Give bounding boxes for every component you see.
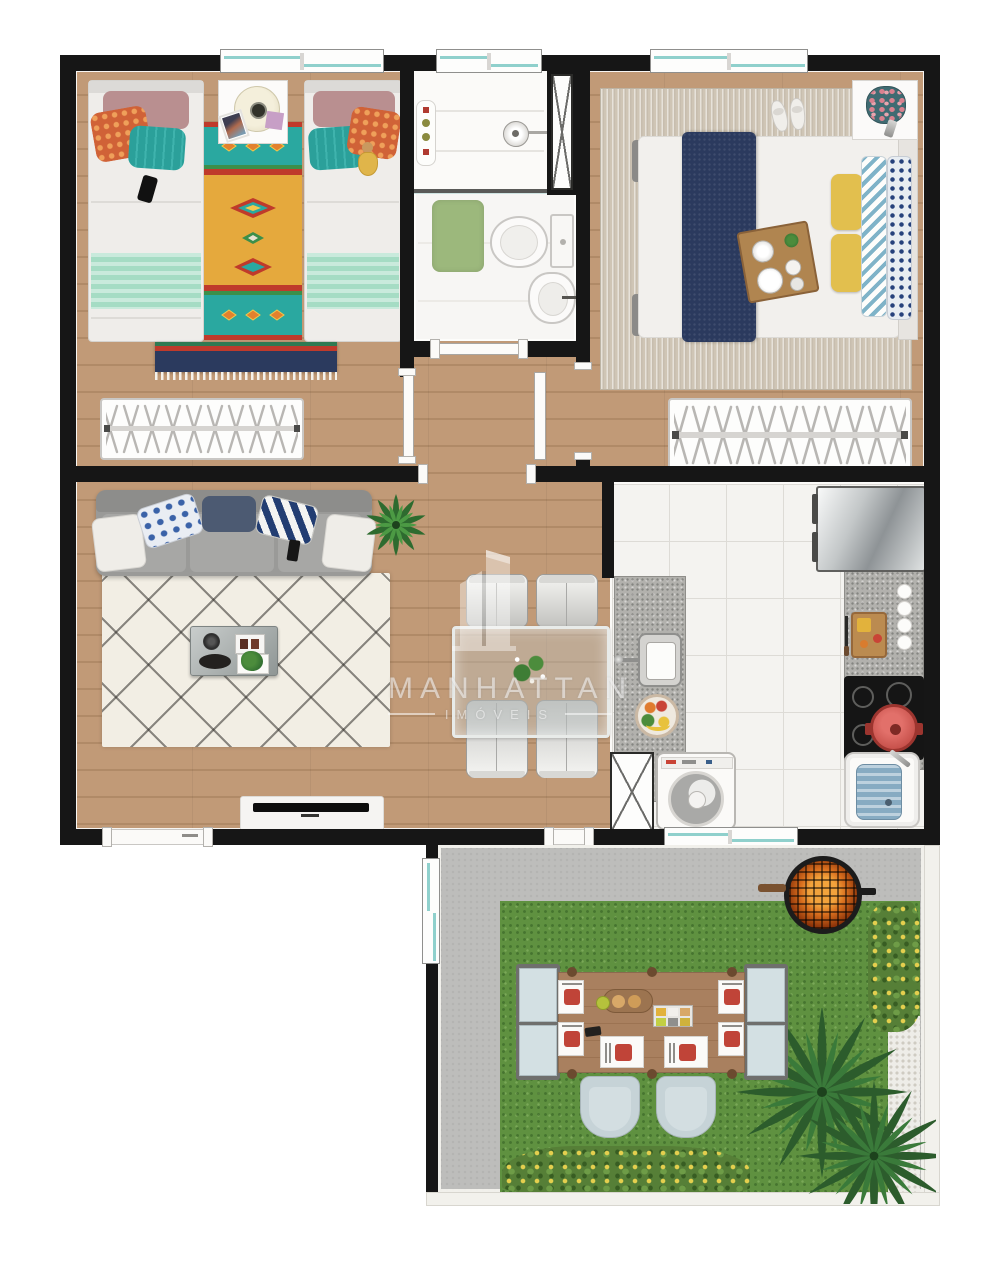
door-jamb xyxy=(518,339,528,359)
kids-runner-rug xyxy=(204,122,302,340)
egg xyxy=(897,601,912,616)
window-pane xyxy=(730,64,805,67)
teapot xyxy=(750,239,775,264)
plate-red xyxy=(679,1044,696,1061)
door-jamb xyxy=(398,456,416,464)
garden-chair xyxy=(656,1076,716,1138)
drain xyxy=(885,799,892,806)
toilet xyxy=(490,214,576,270)
wall-master-left xyxy=(576,55,590,370)
door-jamb xyxy=(584,827,594,847)
cup xyxy=(784,258,803,277)
watermark-brand: MANHATTAN xyxy=(388,672,616,706)
control-mark xyxy=(706,760,712,764)
door-master-bedroom xyxy=(534,372,546,460)
table-peg xyxy=(647,967,657,977)
soap xyxy=(422,119,430,127)
egg xyxy=(897,635,912,650)
door-jamb xyxy=(430,339,440,359)
sofa xyxy=(96,490,372,576)
condiment-tray xyxy=(653,1005,693,1027)
window-divider xyxy=(300,53,304,70)
table-peg xyxy=(567,1069,577,1079)
fruit-bowl xyxy=(635,694,679,738)
garden-bench-right xyxy=(744,964,788,1080)
tv-stand xyxy=(240,796,384,832)
subtitle-rule-right xyxy=(565,713,612,715)
mini-plant xyxy=(783,232,799,248)
wall-left xyxy=(60,55,76,845)
banana xyxy=(646,719,670,731)
carrot xyxy=(860,640,868,648)
brand-logo-icon xyxy=(452,550,516,662)
window-pane xyxy=(303,64,381,67)
plate-red xyxy=(724,989,740,1005)
sink-basin xyxy=(646,642,676,680)
place-setting xyxy=(664,1036,708,1068)
window-garden xyxy=(422,858,440,964)
duvet-seam xyxy=(307,201,399,203)
bench-cushion xyxy=(747,968,785,1022)
place-setting xyxy=(558,980,584,1014)
cushion-teal xyxy=(128,125,187,171)
window-bathroom xyxy=(436,49,542,73)
jam-jar xyxy=(789,276,805,292)
grill-handle xyxy=(858,888,876,895)
door-jamb xyxy=(398,368,416,376)
lamp-shade-center xyxy=(250,102,267,119)
twin-bed-left xyxy=(88,80,204,342)
bread xyxy=(612,995,625,1008)
window-pane xyxy=(440,56,490,59)
cutlery xyxy=(673,1043,675,1063)
tv-base xyxy=(301,814,319,817)
chair-back xyxy=(469,771,525,778)
picnic-table xyxy=(558,972,745,1073)
floor-plan: MANHATTAN IMÓVEIS xyxy=(0,0,1001,1280)
tv xyxy=(253,803,369,812)
laundry-tank xyxy=(844,752,920,828)
shampoo-bottle xyxy=(423,107,429,113)
condiment xyxy=(656,1018,666,1026)
chair-seam xyxy=(566,583,567,627)
door-kids-bedroom xyxy=(403,368,414,460)
table-peg xyxy=(567,967,577,977)
wardrobe-rack-master xyxy=(668,398,912,472)
plate xyxy=(755,266,785,296)
bottle xyxy=(251,639,259,649)
window-divider xyxy=(487,53,491,70)
dining-chair xyxy=(536,574,598,628)
cutlery xyxy=(669,1043,671,1063)
place-setting xyxy=(718,980,744,1014)
chair-seat xyxy=(589,1087,631,1131)
washer-controls xyxy=(661,757,733,769)
kitchen-faucet-base xyxy=(614,655,623,664)
kids-fringe-rug xyxy=(155,342,337,372)
wall-right xyxy=(924,55,940,845)
pillow-chevron xyxy=(861,156,887,317)
tomato xyxy=(873,634,882,643)
charcoal-grill xyxy=(784,856,862,934)
fridge-handle xyxy=(812,494,818,524)
wall-bath-bottom-b xyxy=(522,341,578,357)
condiment xyxy=(668,1018,678,1026)
door-jamb xyxy=(574,362,592,370)
window-master-bedroom xyxy=(650,49,808,73)
bench-cushion xyxy=(519,968,557,1022)
table-peg xyxy=(727,967,737,977)
chair-back xyxy=(539,771,595,778)
rug-fringe xyxy=(155,372,337,380)
cutlery xyxy=(722,983,742,985)
knife xyxy=(845,616,848,648)
washer-drum xyxy=(668,771,724,827)
plate-red xyxy=(564,1031,580,1047)
shower-head-center xyxy=(512,130,519,137)
condiment xyxy=(680,1008,690,1016)
wall-bottom-b xyxy=(205,829,552,845)
garden-chair xyxy=(580,1076,640,1138)
place-setting xyxy=(718,1022,744,1056)
kitchen-sink xyxy=(638,633,682,687)
decor-bowl xyxy=(199,654,231,669)
shower-glass-partition xyxy=(414,189,550,193)
control-mark xyxy=(666,760,676,764)
cutlery xyxy=(605,1043,607,1063)
kitchen-faucet xyxy=(620,658,640,662)
door-jamb xyxy=(526,464,536,484)
grill-handle-wood xyxy=(758,884,786,892)
flower-bouquet xyxy=(866,86,906,124)
subtitle-rule-left xyxy=(388,713,435,715)
egg xyxy=(897,584,912,599)
window-pane xyxy=(654,56,729,59)
window-divider xyxy=(727,53,731,70)
table-peg xyxy=(727,1069,737,1079)
toilet-tank xyxy=(550,214,574,268)
doll-dress xyxy=(358,152,378,176)
window-pane xyxy=(731,839,794,842)
burner xyxy=(852,686,874,708)
shampoo-bottle xyxy=(423,149,429,155)
fridge xyxy=(816,486,926,572)
decor-wheel xyxy=(203,633,220,650)
condiment xyxy=(656,1008,666,1016)
cutting-board xyxy=(851,612,887,658)
door-bathroom xyxy=(438,343,522,355)
cutlery xyxy=(722,1025,742,1027)
door-jamb xyxy=(203,827,213,847)
window-pane xyxy=(224,56,302,59)
cutlery xyxy=(609,1043,611,1063)
shower-shelf xyxy=(416,100,436,166)
flower-bed-bottom xyxy=(502,1146,750,1192)
garden-bench-left xyxy=(516,964,560,1080)
door-jamb xyxy=(418,464,428,484)
place-setting xyxy=(558,1022,584,1056)
window-bathroom-side xyxy=(551,74,573,190)
wall-kids-right xyxy=(400,55,414,377)
decor-plant xyxy=(241,651,263,671)
bottle xyxy=(240,639,248,649)
drum-center xyxy=(688,791,706,809)
window-pane xyxy=(490,64,538,67)
pink-box xyxy=(265,111,284,130)
door-jamb xyxy=(544,827,554,847)
soap xyxy=(422,133,430,141)
pillow-yellow xyxy=(831,234,863,292)
chair-seat xyxy=(665,1087,707,1131)
wall-mid-b xyxy=(530,466,940,482)
condiment xyxy=(668,1008,678,1016)
shower-head-icon xyxy=(503,121,529,147)
bread-board xyxy=(603,989,653,1013)
navy-pillow xyxy=(202,496,256,532)
window-pane xyxy=(427,863,430,911)
duvet-seam xyxy=(91,317,201,319)
mint-blanket xyxy=(307,253,399,309)
washboard xyxy=(856,764,902,820)
cheese xyxy=(857,618,871,632)
entry-threshold xyxy=(110,829,206,845)
slipper-strap xyxy=(791,106,803,114)
window-divider xyxy=(728,830,732,844)
window-laundry xyxy=(664,827,798,847)
wardrobe-rack-kids xyxy=(100,398,304,460)
laundry-glass-door xyxy=(610,752,654,832)
washing-machine xyxy=(656,752,736,830)
pot-handle xyxy=(865,723,873,735)
pot-handle xyxy=(915,723,923,735)
table-peg xyxy=(647,1069,657,1079)
flush-button xyxy=(560,239,566,245)
watermark-subtitle: IMÓVEIS xyxy=(445,707,555,722)
cooktop xyxy=(844,676,924,760)
door-jamb xyxy=(574,452,592,460)
mint-blanket xyxy=(91,253,201,309)
photo xyxy=(222,113,246,139)
fridge-handle xyxy=(812,532,818,562)
pillow-lattice xyxy=(887,156,912,320)
entry-handle xyxy=(182,834,198,837)
knife-handle xyxy=(844,646,849,656)
bath-mat xyxy=(432,200,484,272)
potted-plant xyxy=(362,490,430,558)
bench-cushion xyxy=(747,1025,785,1076)
bread xyxy=(628,995,641,1008)
breakfast-tray xyxy=(736,220,819,303)
doll xyxy=(356,142,378,176)
control-mark xyxy=(682,760,696,764)
lime xyxy=(596,996,610,1010)
plate-red xyxy=(724,1031,740,1047)
shower-floor-line xyxy=(418,110,544,112)
plate-red xyxy=(615,1044,632,1061)
sink-basin xyxy=(538,282,568,316)
chair-back xyxy=(539,575,595,583)
twin-bed-right xyxy=(304,80,402,342)
shower-floor-line xyxy=(418,150,544,152)
plate-red xyxy=(564,989,580,1005)
toilet-seat xyxy=(500,225,538,260)
egg xyxy=(897,618,912,633)
door-jamb xyxy=(102,827,112,847)
window-kids-bedroom xyxy=(220,49,384,73)
pillow-yellow xyxy=(831,174,863,230)
cutlery xyxy=(562,983,582,985)
place-setting xyxy=(600,1036,644,1068)
eggs xyxy=(896,584,912,650)
window-pane xyxy=(668,833,731,836)
window-pane xyxy=(433,913,436,961)
wall-kitchen-stub xyxy=(602,482,614,578)
cutlery xyxy=(562,1025,582,1027)
red-pot xyxy=(870,704,918,752)
wall-mid-a xyxy=(60,466,426,482)
napkin-holder xyxy=(584,1026,601,1037)
condiment xyxy=(680,1018,690,1026)
watermark-subtitle-row: IMÓVEIS xyxy=(388,706,612,722)
patio-threshold xyxy=(552,829,586,845)
pot-knob xyxy=(890,724,901,735)
bench-cushion xyxy=(519,1025,557,1076)
bathroom-sink xyxy=(528,272,576,324)
coffee-table xyxy=(190,626,278,676)
slipper-strap xyxy=(772,107,784,116)
